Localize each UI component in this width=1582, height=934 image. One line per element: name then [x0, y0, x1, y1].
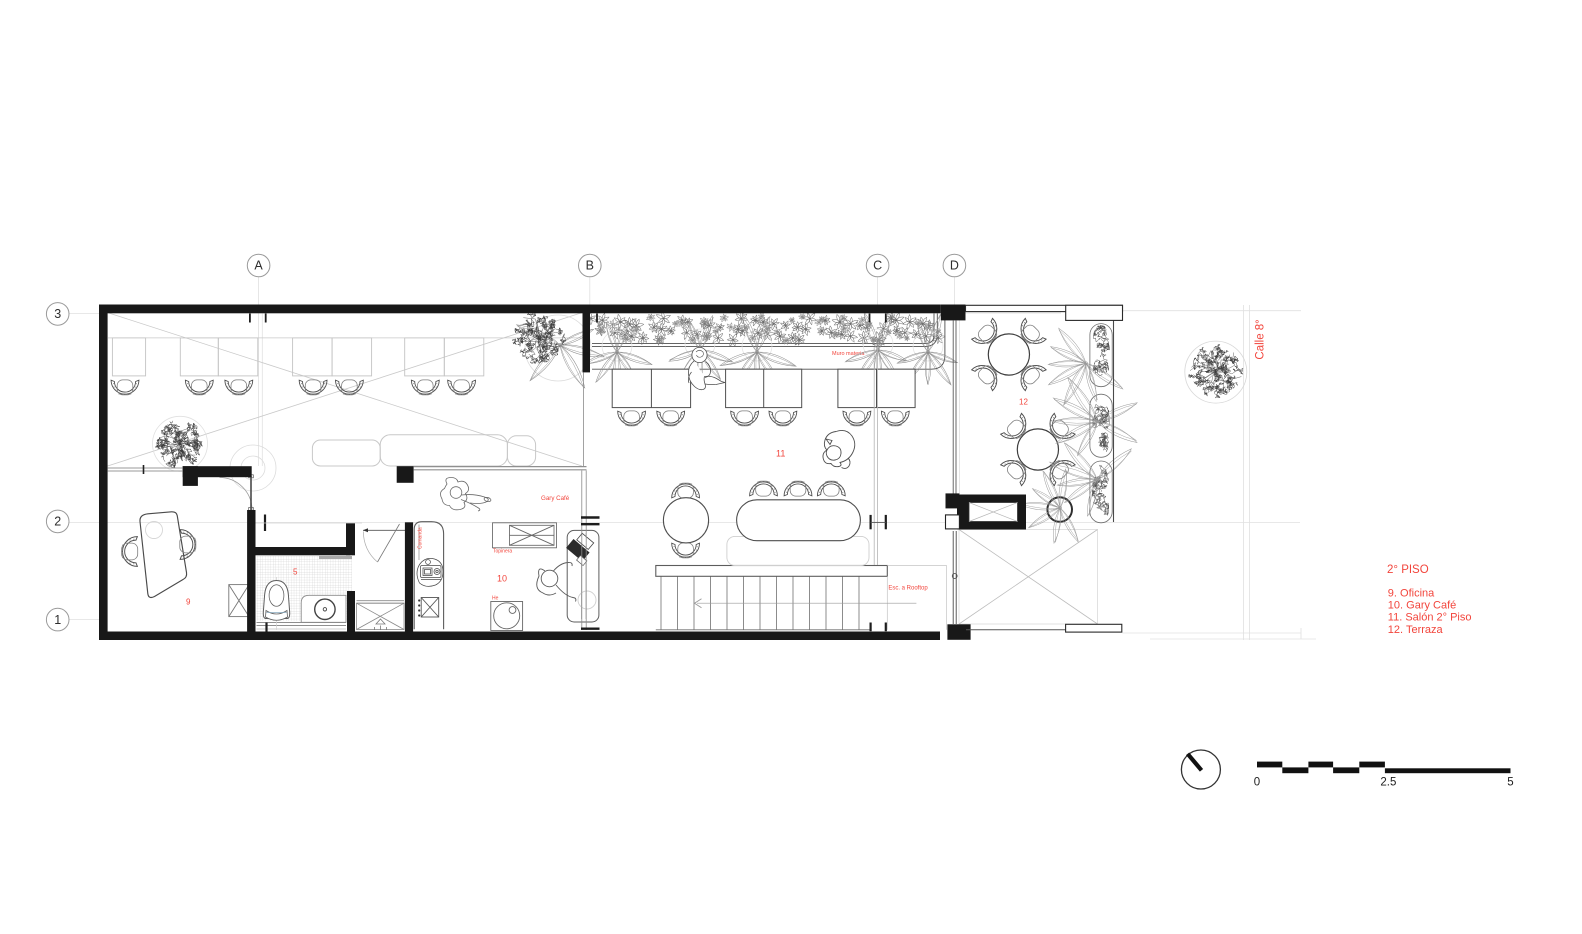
svg-text:D: D — [950, 259, 959, 273]
svg-text:C: C — [873, 259, 882, 273]
svg-text:2° PISO: 2° PISO — [1387, 564, 1429, 576]
svg-text:5: 5 — [293, 568, 298, 577]
svg-text:5: 5 — [1507, 777, 1513, 789]
svg-text:1: 1 — [54, 613, 61, 627]
svg-text:2.5: 2.5 — [1380, 777, 1396, 789]
svg-text:Gary Café: Gary Café — [541, 495, 570, 502]
svg-text:10. Gary Café: 10. Gary Café — [1388, 600, 1456, 612]
svg-text:12: 12 — [1019, 398, 1028, 407]
svg-text:9. Oficina: 9. Oficina — [1388, 588, 1435, 600]
svg-text:0: 0 — [1254, 777, 1260, 789]
svg-text:3: 3 — [54, 307, 61, 321]
svg-text:A: A — [254, 259, 263, 273]
svg-text:Topinera: Topinera — [493, 549, 512, 555]
svg-text:11. Salón 2° Piso: 11. Salón 2° Piso — [1388, 612, 1472, 624]
svg-text:10: 10 — [497, 574, 507, 584]
svg-text:12. Terraza: 12. Terraza — [1388, 624, 1444, 636]
svg-text:11: 11 — [776, 449, 785, 459]
svg-text:Esc. a Rooftop: Esc. a Rooftop — [888, 586, 928, 592]
svg-text:Muro materia: Muro materia — [832, 351, 865, 357]
svg-text:2: 2 — [54, 515, 61, 529]
svg-text:He: He — [492, 596, 499, 602]
svg-text:Calle 8°: Calle 8° — [1255, 319, 1267, 359]
svg-text:Comanda: Comanda — [418, 527, 424, 549]
svg-text:9: 9 — [186, 598, 191, 607]
svg-text:B: B — [586, 259, 594, 273]
